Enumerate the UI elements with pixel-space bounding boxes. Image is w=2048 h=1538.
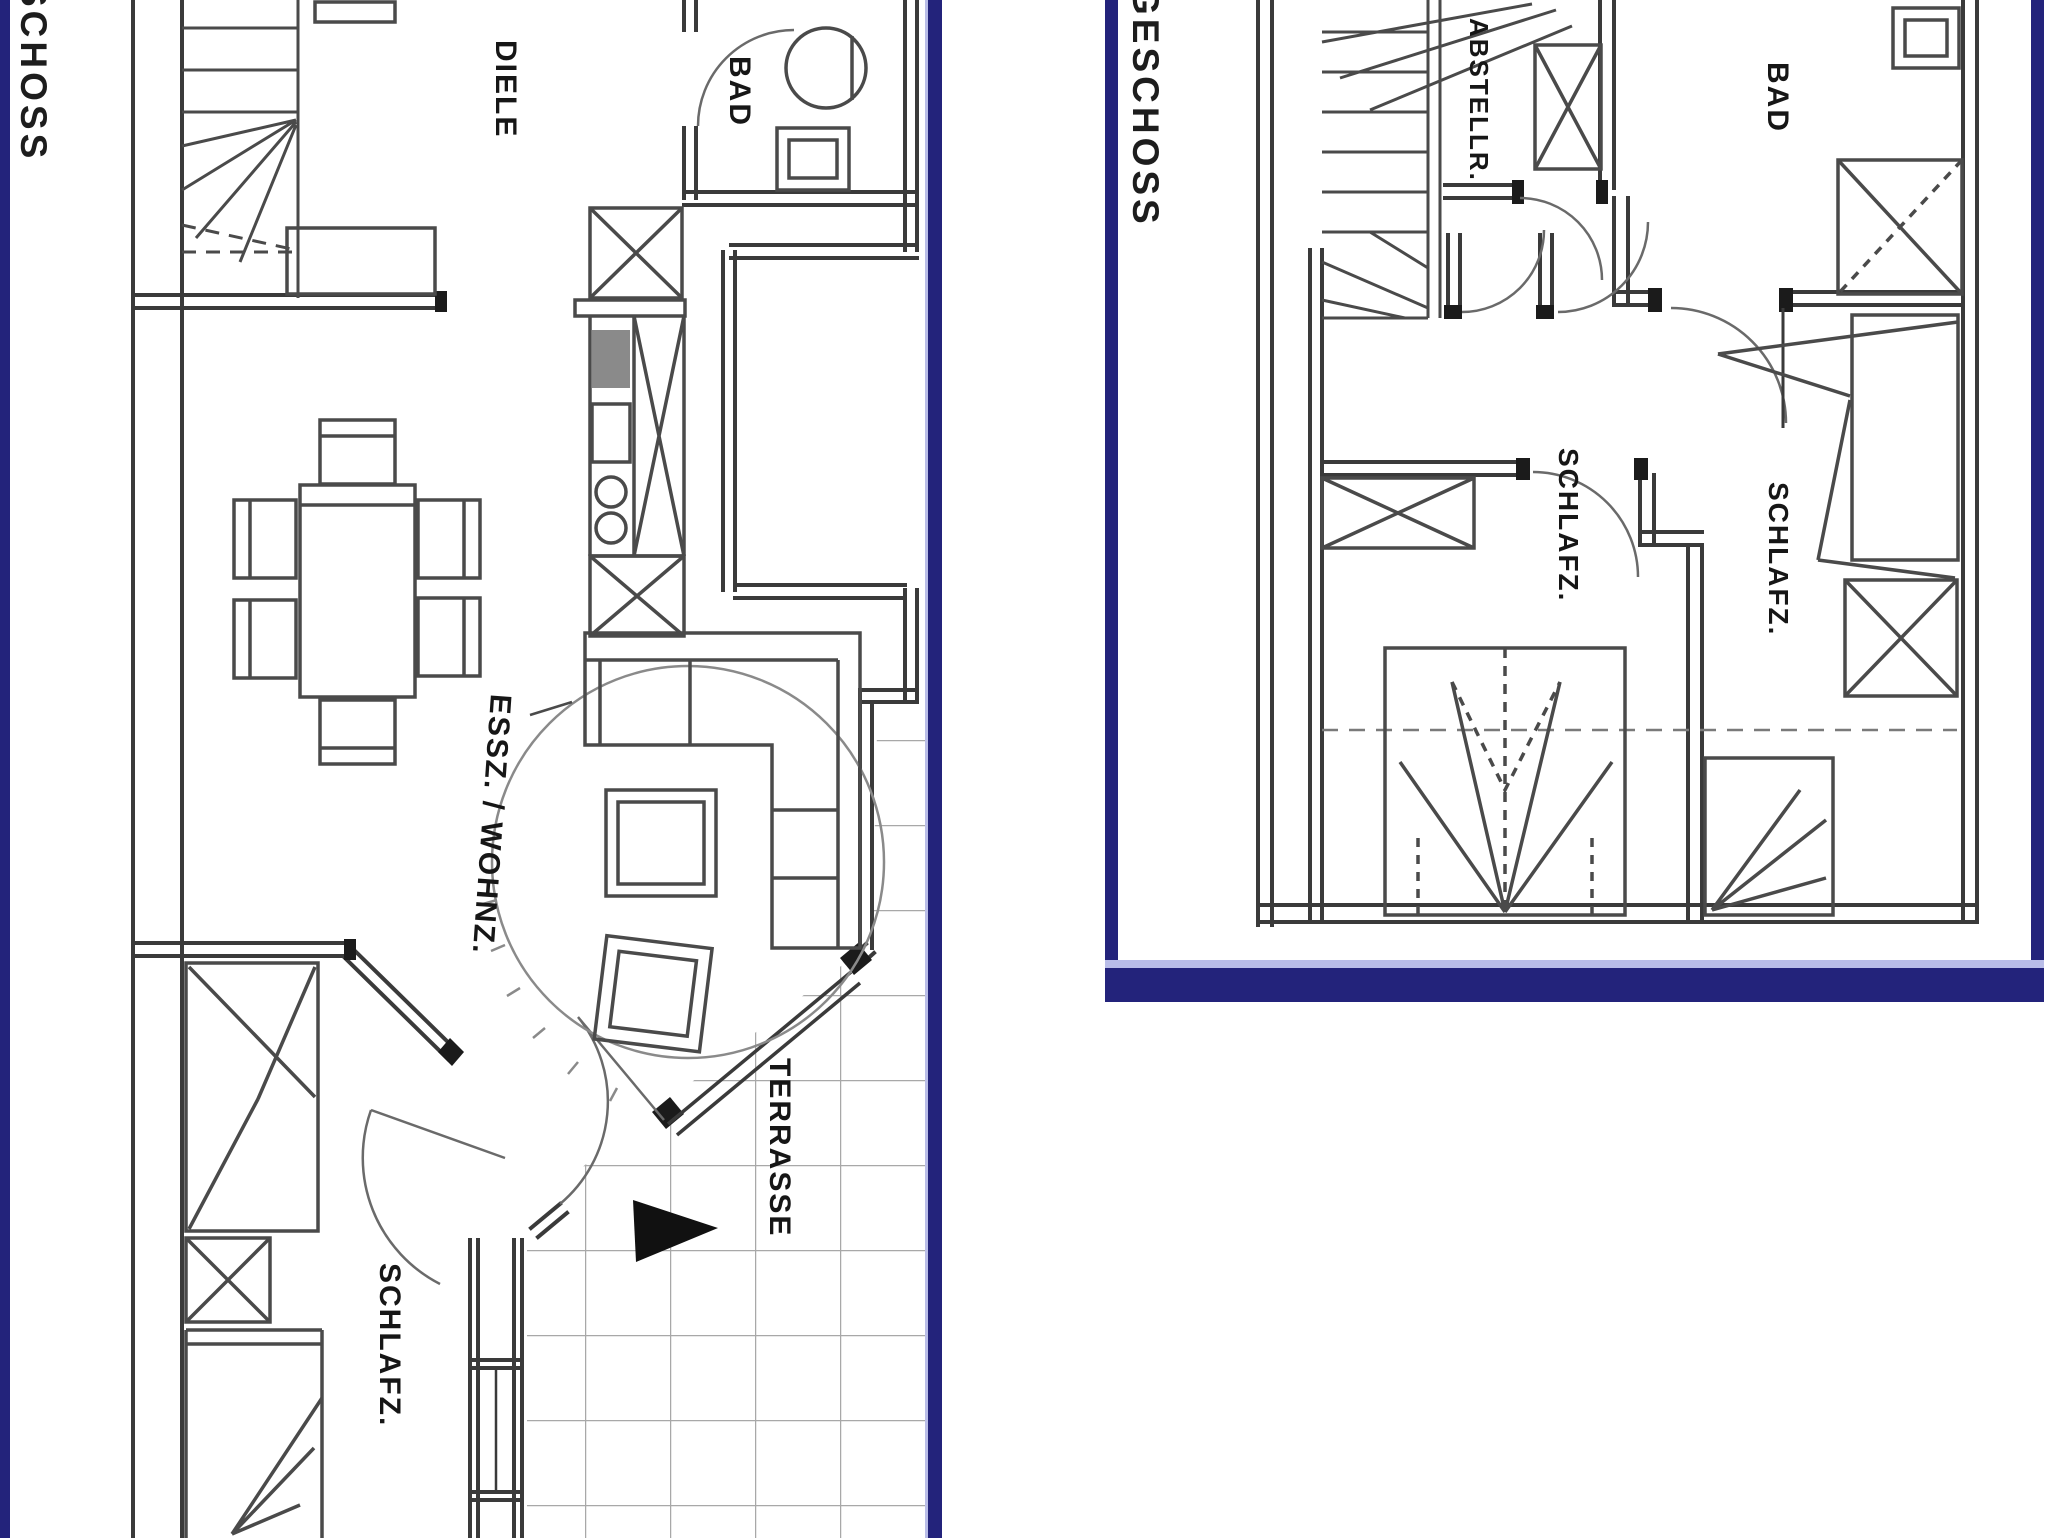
room-label-abstellraum: ABSTELLR. [1463, 18, 1494, 182]
right-bedroom-furniture [1705, 315, 1958, 915]
bedroom-furniture [186, 963, 322, 1538]
upper-bathroom-fixtures [1838, 8, 1962, 294]
bathroom-fixtures [777, 28, 866, 190]
dining-set [234, 420, 480, 764]
floorplan-drawing [0, 0, 2048, 1538]
room-label-diele: DIELE [488, 40, 522, 138]
coffee-table [606, 790, 716, 896]
armchair [594, 936, 712, 1052]
room-label-schlafz-right: SCHLAFZ. [1762, 482, 1794, 636]
storage-shelf [1535, 45, 1601, 169]
room-label-bad-ground: BAD [722, 56, 756, 127]
room-label-bad-upper: BAD [1760, 62, 1794, 133]
room-label-terrasse: TERRASSE [762, 1058, 796, 1237]
room-label-schlafz-ground: SCHLAFZ. [372, 1263, 406, 1427]
room-label-schlafz-left: SCHLAFZ. [1552, 448, 1584, 602]
hall-sideboard [287, 2, 435, 294]
right-plan-walls [1258, 0, 1977, 925]
floor-title-upper: GESCHOSS [1124, 0, 1166, 228]
right-plan-door-arcs [1462, 198, 1786, 577]
toilet-icon [1893, 8, 1959, 68]
floor-title-ground: SCHOSS [12, 0, 54, 162]
kitchen-block [575, 208, 685, 636]
left-plan [0, 0, 942, 1538]
left-plan-wall-caps [344, 291, 872, 1129]
bed-right [1852, 315, 1958, 560]
stairs-ground-floor [182, 0, 298, 298]
floorplan-page: SCHOSS DIELE BAD ESSZ. / WOHNZ. SCHLAFZ.… [0, 0, 2048, 1538]
washbasin-icon [786, 28, 866, 108]
bed-2 [186, 1330, 322, 1538]
dining-table [300, 485, 415, 697]
